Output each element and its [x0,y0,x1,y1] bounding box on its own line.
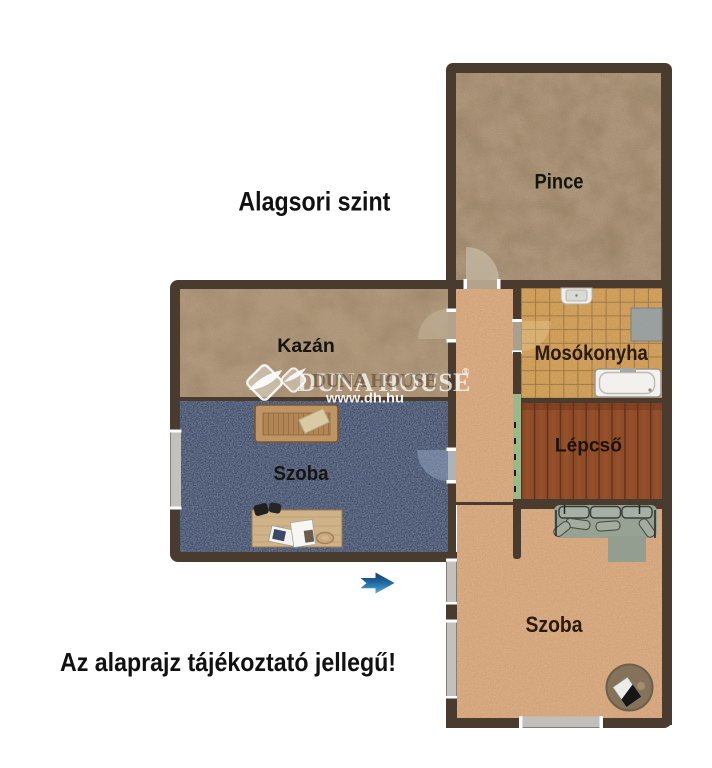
svg-text:Szoba: Szoba [526,612,584,637]
svg-text:DUNA HOUSE: DUNA HOUSE [312,370,437,392]
svg-text:Lépcső: Lépcső [555,435,622,457]
svg-text:Alagsori szint: Alagsori szint [238,187,390,217]
svg-text:Mosókonyha: Mosókonyha [535,341,649,365]
svg-text:®: ® [462,367,470,378]
svg-text:Az alaprajz tájékoztató jelleg: Az alaprajz tájékoztató jellegű! [60,647,396,677]
svg-text:Pince: Pince [535,171,584,194]
svg-text:®: ® [430,372,436,381]
svg-text:www.dh.hu: www.dh.hu [325,391,404,406]
svg-text:Kazán: Kazán [277,336,335,357]
svg-text:Szoba: Szoba [274,463,330,485]
